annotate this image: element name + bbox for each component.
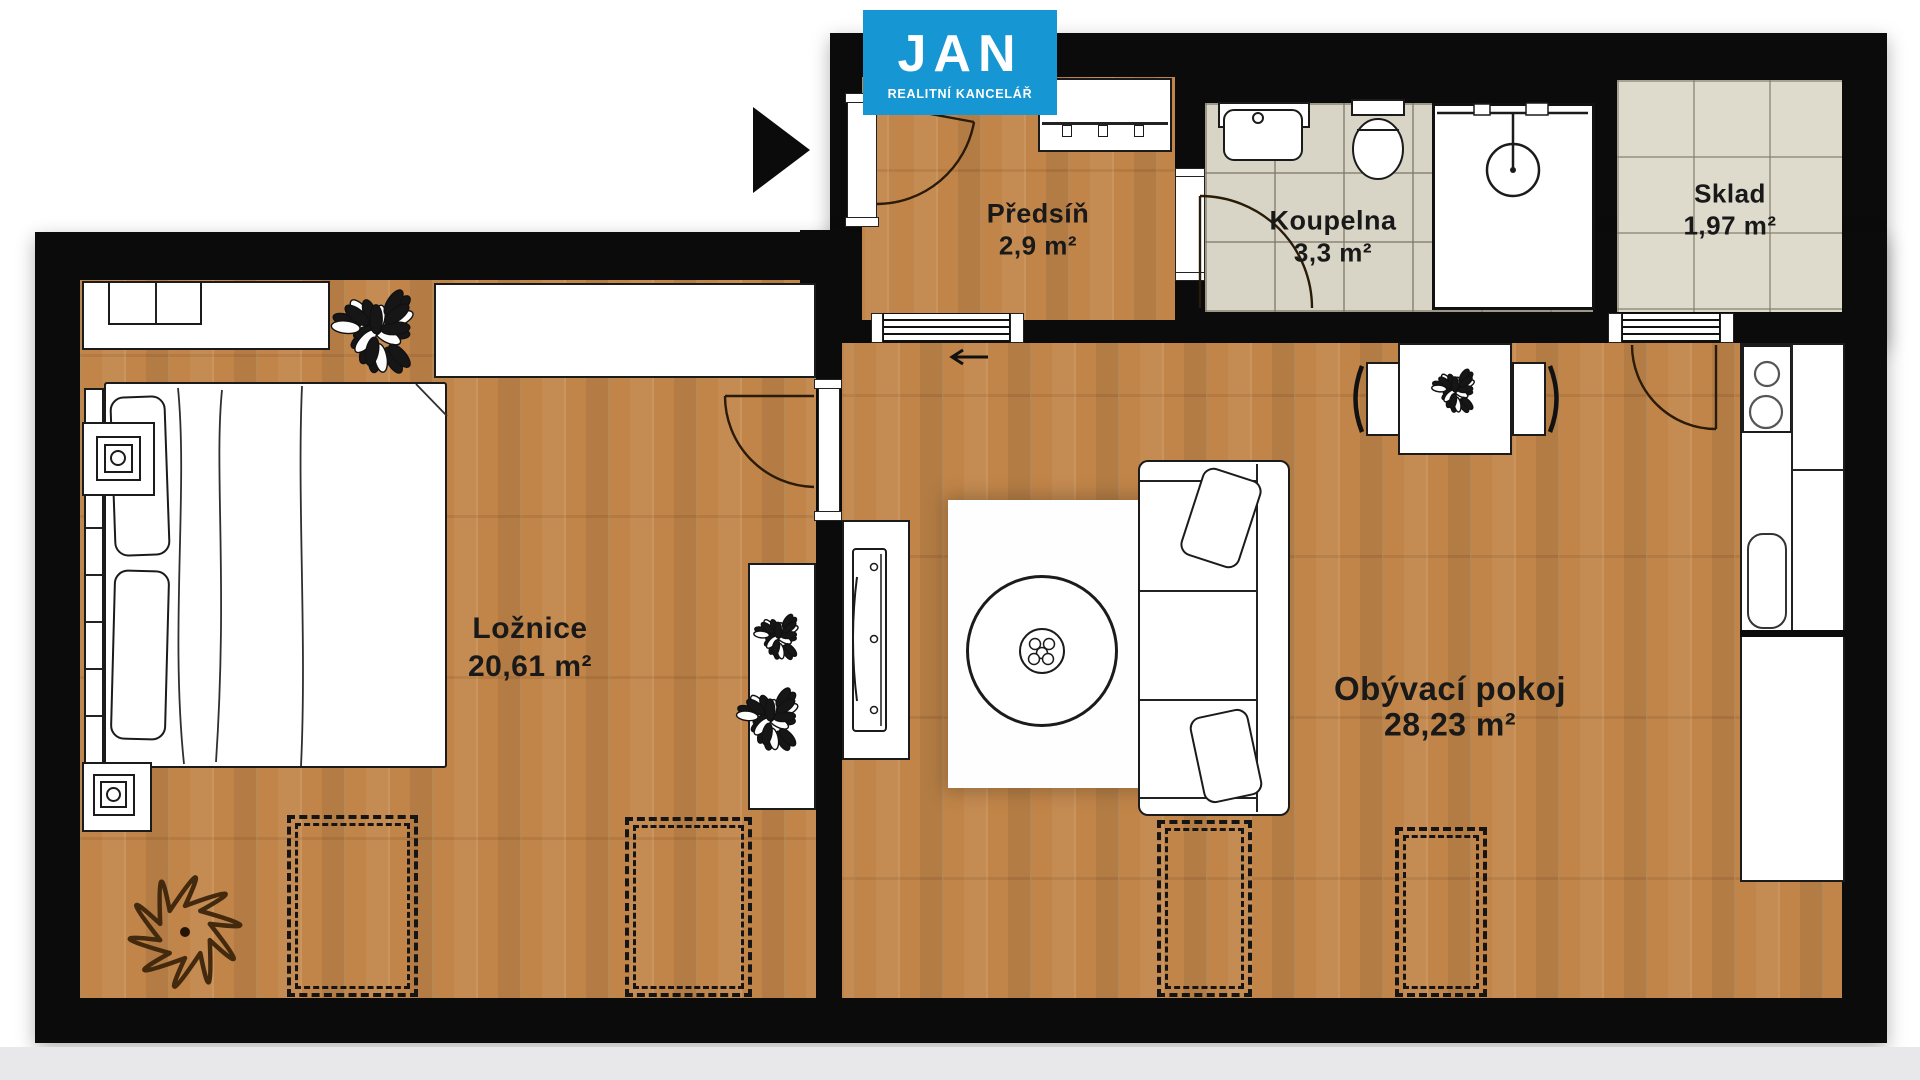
hallway-area: 2,9 m²	[999, 231, 1077, 262]
bathroom-label: Koupelna	[1269, 206, 1396, 237]
rail-bracket	[1134, 125, 1144, 137]
stove-icon	[1742, 345, 1792, 433]
door-jamb	[871, 313, 883, 343]
bathroom-area: 3,3 m²	[1294, 238, 1372, 269]
pillow-icon	[110, 569, 170, 740]
radiator-dashed-zone	[625, 817, 752, 997]
entrance-arrow-icon	[753, 107, 810, 193]
chair-icon	[1512, 362, 1546, 436]
washbasin-counter	[1218, 102, 1310, 128]
bedroom-area: 20,61 m²	[468, 650, 592, 684]
radiator-dashed-zone	[1395, 827, 1487, 997]
radiator-dashed-zone	[287, 815, 418, 997]
floorplan-image: Ložnice 20,61 m² Obývací pokoj 28,23 m² …	[0, 0, 1920, 1080]
tv-stand-icon	[842, 520, 910, 760]
dining-table-icon	[1398, 343, 1512, 455]
door-jamb	[1175, 272, 1205, 281]
shower-icon	[1432, 103, 1595, 310]
lamp-bulb	[110, 450, 126, 466]
bottom-shadow-strip	[0, 1047, 1920, 1080]
storage-label: Sklad	[1694, 179, 1766, 210]
round-coffee-table-icon	[966, 575, 1118, 727]
door-jamb	[1175, 168, 1205, 177]
chair-icon	[1366, 362, 1400, 436]
storage-door-threshold	[1622, 313, 1720, 343]
bathroom-door-frame	[1175, 174, 1205, 274]
living-room-area: 28,23 m²	[1384, 707, 1516, 744]
radiator-dashed-zone	[1157, 820, 1252, 997]
bedroom-label: Ložnice	[472, 612, 587, 646]
storage-area: 1,97 m²	[1683, 211, 1776, 242]
logo-wordmark: JAN	[897, 28, 1022, 80]
rail-bracket	[1062, 125, 1072, 137]
cabinet-divider	[155, 283, 157, 323]
sliding-door-icon	[883, 313, 1010, 343]
rail-bracket	[1098, 125, 1108, 137]
living-room-label: Obývací pokoj	[1334, 670, 1566, 708]
wardrobe-icon	[434, 283, 816, 378]
bedroom-door-frame	[818, 383, 840, 517]
door-jamb	[814, 511, 842, 521]
logo-subtitle: REALITNÍ KANCELÁŘ	[888, 87, 1033, 101]
sofa-seat-line	[1140, 699, 1256, 701]
console-shelf-icon	[748, 563, 816, 810]
lamp-bulb	[106, 787, 121, 802]
built-in-cabinet-icon	[108, 281, 202, 325]
door-jamb	[845, 217, 879, 227]
door-jamb	[1608, 313, 1622, 343]
kitchen-counter-divider	[1740, 630, 1845, 637]
hallway-label: Předsíň	[987, 199, 1090, 230]
sofa-seat-line	[1140, 590, 1256, 592]
hall-wardrobe-icon	[1038, 78, 1172, 152]
door-jamb	[1720, 313, 1734, 343]
door-jamb	[1010, 313, 1024, 343]
agency-logo: JAN REALITNÍ KANCELÁŘ	[863, 10, 1057, 115]
door-jamb	[814, 379, 842, 389]
